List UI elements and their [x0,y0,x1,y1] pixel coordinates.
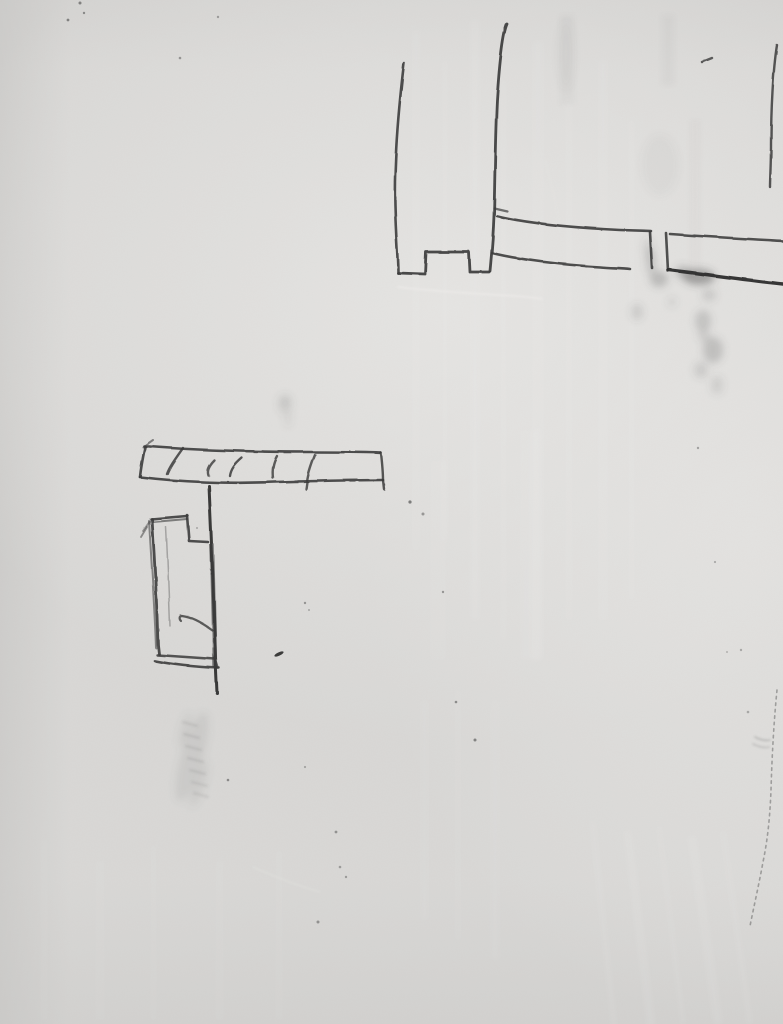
wall-scene [0,0,783,1024]
wall-photo [0,0,783,1024]
film-grain-overlay [0,0,783,1024]
